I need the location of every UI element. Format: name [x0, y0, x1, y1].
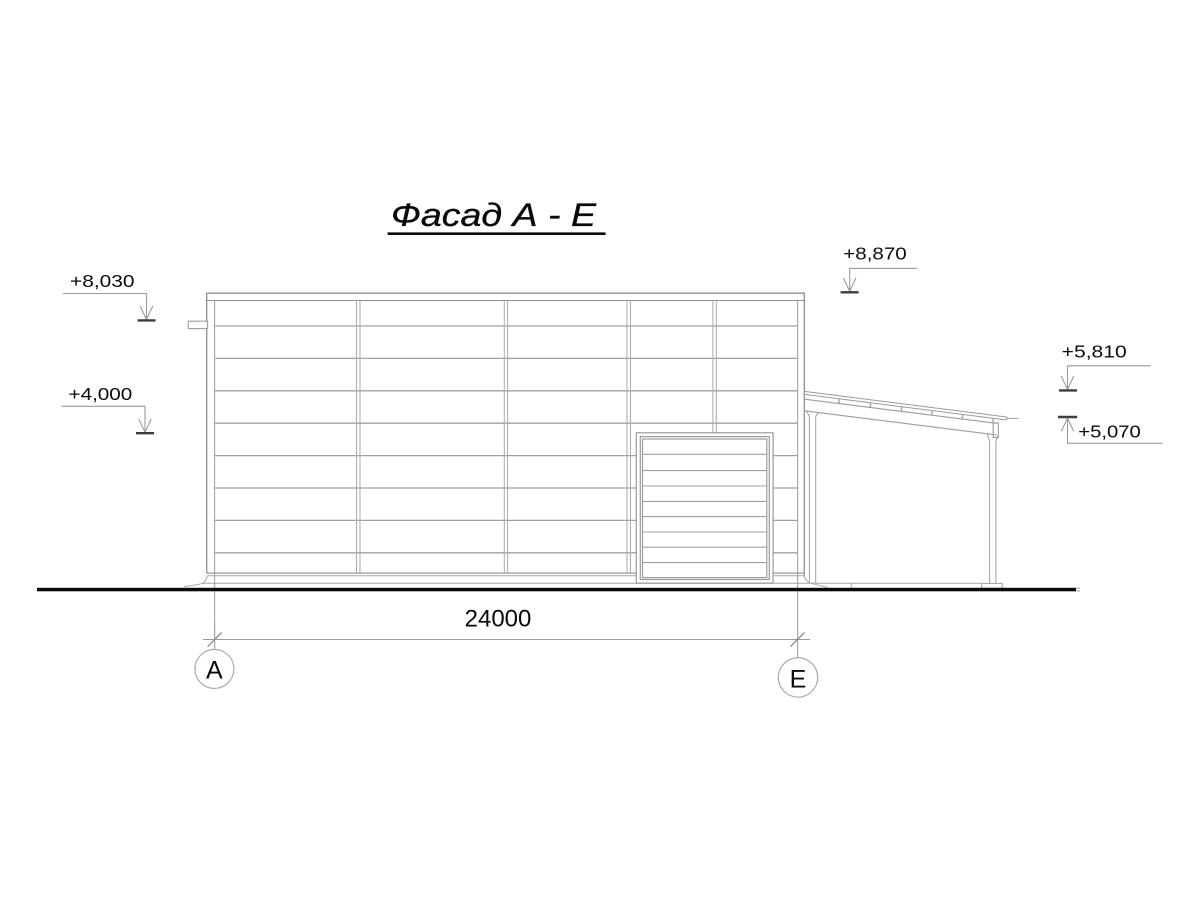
svg-text:+4,000: +4,000	[69, 384, 133, 404]
svg-text:А: А	[206, 657, 223, 685]
svg-text:+5,070: +5,070	[1078, 421, 1141, 441]
svg-text:Фасад А - Е: Фасад А - Е	[391, 197, 597, 233]
svg-text:24000: 24000	[465, 606, 532, 633]
svg-text:+8,870: +8,870	[843, 244, 907, 264]
svg-text:+5,810: +5,810	[1062, 341, 1127, 361]
svg-text:Е: Е	[790, 666, 807, 694]
svg-text:+8,030: +8,030	[70, 271, 135, 291]
